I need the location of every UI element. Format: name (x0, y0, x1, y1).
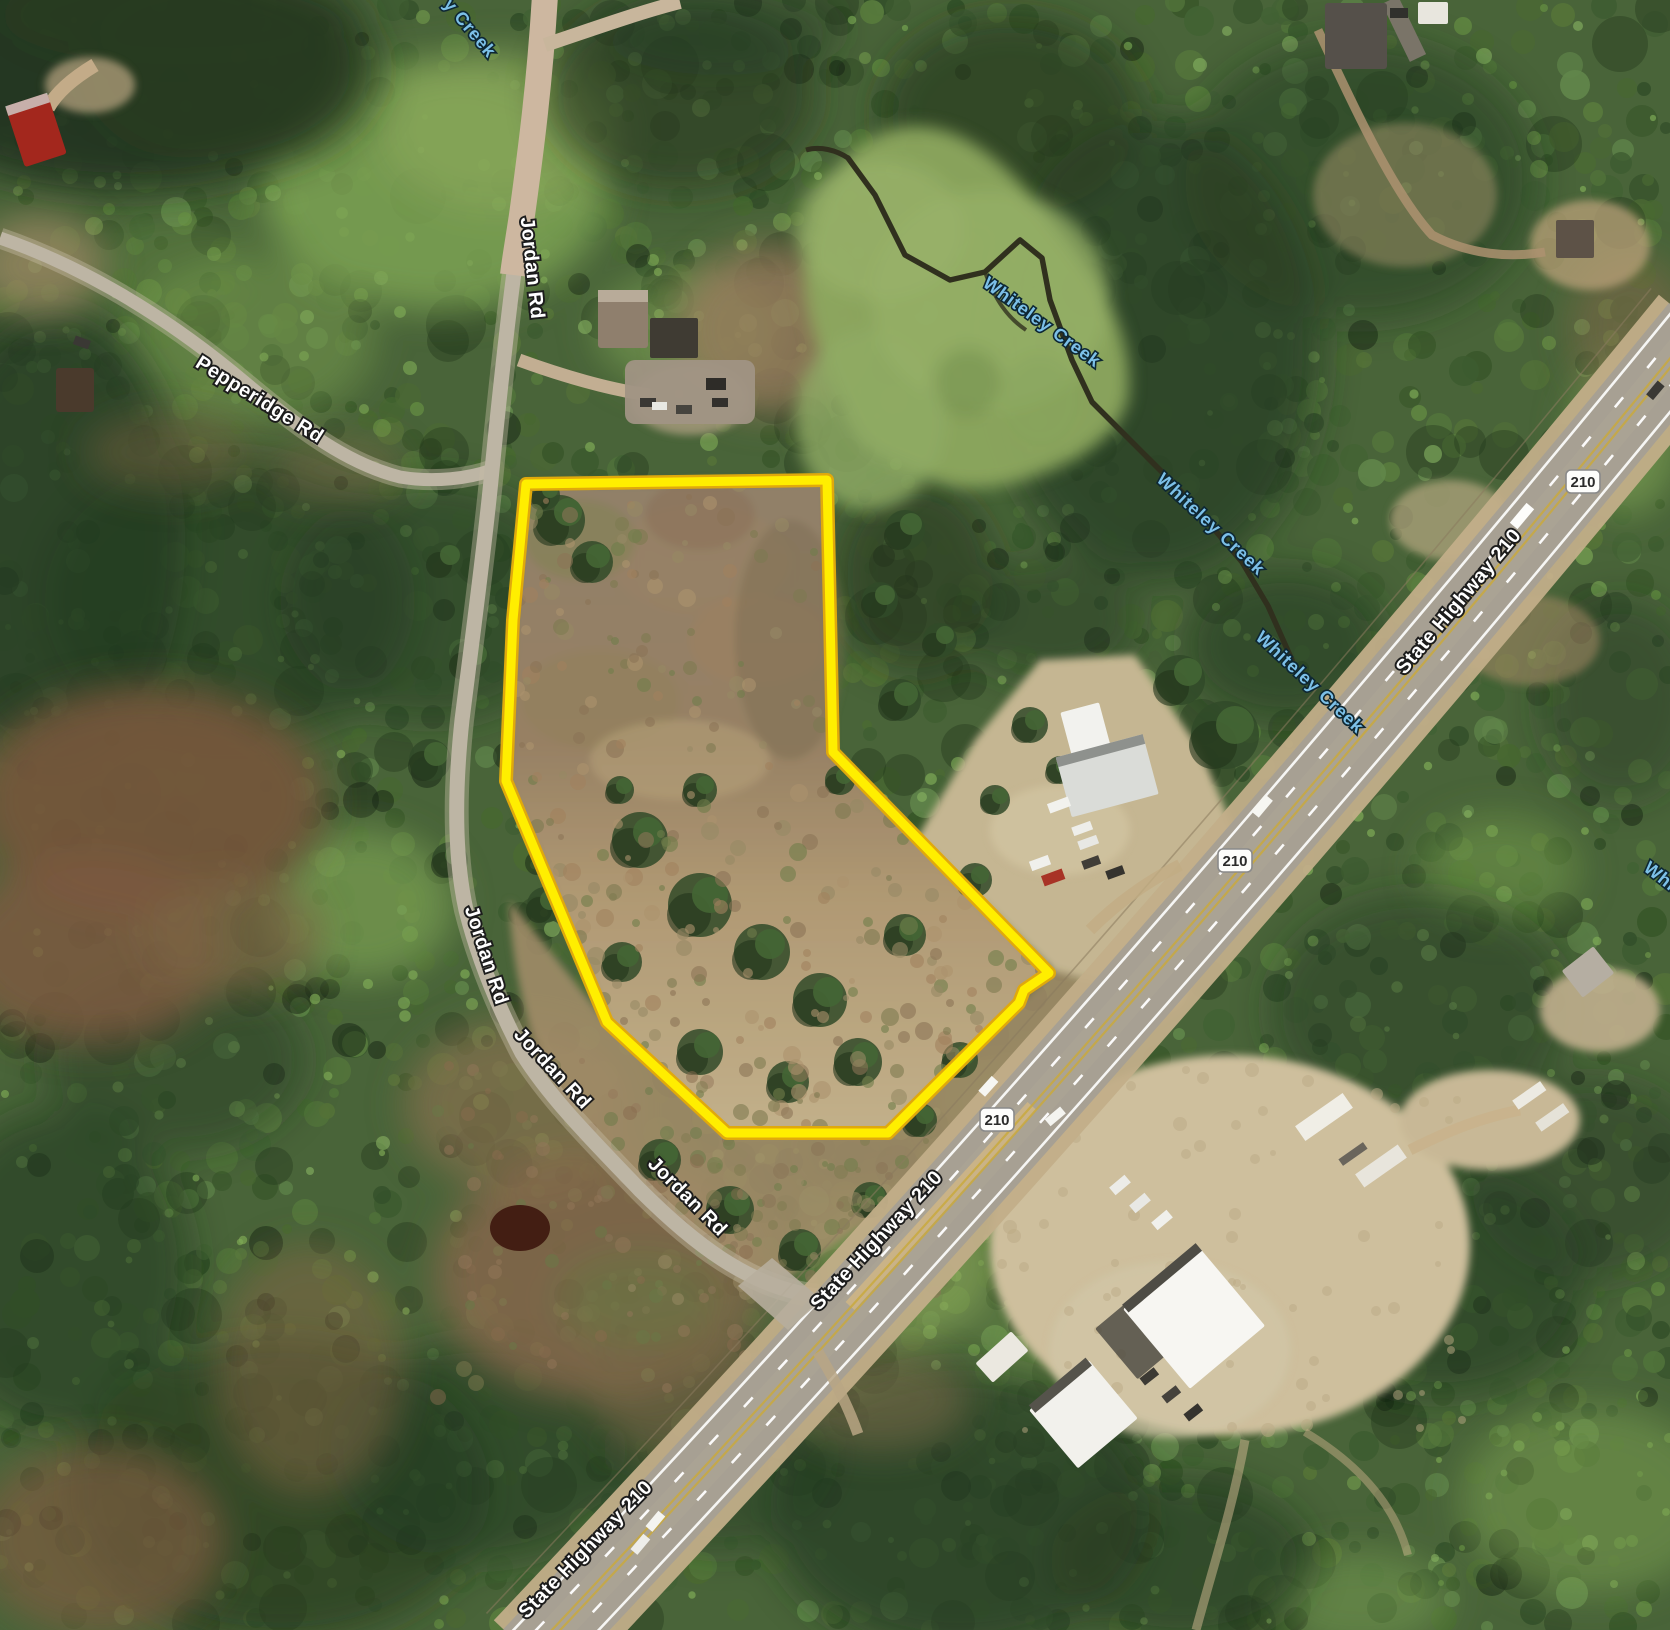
svg-text:210: 210 (984, 1112, 1009, 1129)
svg-text:210: 210 (1222, 853, 1247, 870)
svg-text:210: 210 (1570, 474, 1595, 491)
